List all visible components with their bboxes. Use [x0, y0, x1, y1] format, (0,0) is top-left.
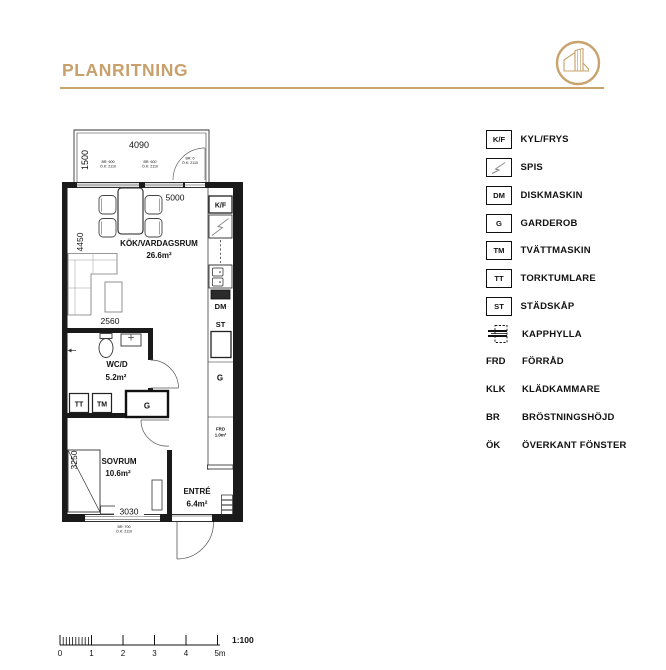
- legend-item-kylfrys: K/F KYL/FRYS: [486, 126, 627, 154]
- room-entry-name: ENTRÉ: [183, 487, 211, 496]
- svg-text:Ö.K: 2110: Ö.K: 2110: [100, 165, 116, 169]
- tt-symbol-box: TT: [486, 269, 512, 288]
- brand-logo-icon: [553, 38, 603, 88]
- legend-item-overkant-fonster: ÖK ÖVERKANT FÖNSTER: [486, 431, 627, 459]
- dim-kitchen-width: 5000: [166, 193, 185, 203]
- dining-set: [99, 188, 162, 237]
- tm-symbol-box: TM: [486, 241, 512, 260]
- room-kitchen-name: KÖK/VARDAGSRUM: [120, 239, 198, 248]
- lightning-icon: [489, 161, 509, 175]
- dim-balcony-depth: 1500: [80, 150, 90, 170]
- sink-icon: [213, 268, 224, 276]
- svg-text:BR: 0: BR: 0: [186, 157, 195, 161]
- bedroom-door: [141, 420, 169, 446]
- dm-symbol-box: DM: [486, 186, 512, 205]
- svg-text:3: 3: [152, 649, 157, 658]
- scale-ratio: 1:100: [232, 635, 254, 645]
- wc-door: [151, 360, 179, 388]
- stove-symbol-box: [486, 158, 512, 177]
- room-bedroom-name: SOVRUM: [101, 457, 136, 466]
- dishwasher-label: DM: [215, 302, 227, 311]
- g-symbol-box: G: [486, 214, 512, 233]
- page-title: PLANRITNING: [62, 60, 188, 81]
- dim-bedroom-width: 3030: [120, 507, 139, 517]
- dim-bedroom-depth: 3250: [69, 450, 79, 469]
- svg-text:Ö.K: 2110: Ö.K: 2110: [182, 161, 198, 165]
- microwave-icon: [211, 290, 230, 299]
- minor-ticks: [63, 637, 88, 645]
- svg-text:4: 4: [184, 649, 189, 658]
- legend: K/F KYL/FRYS SPIS DM DISKMASKIN G GARDER…: [486, 126, 627, 459]
- kf-symbol-box: K/F: [486, 130, 512, 149]
- vent-arrow-icon: [68, 349, 77, 353]
- legend-item-brostningshojd: BR BRÖSTNINGSHÖJD: [486, 404, 627, 432]
- scale-labels: 0 1 2 3 4 5m: [58, 649, 226, 658]
- entrance-door: [177, 522, 214, 559]
- st-symbol-box: ST: [486, 297, 512, 316]
- coffee-table: [105, 282, 122, 312]
- cleaning-cab-label: ST: [216, 320, 226, 329]
- scale-bar: 0 1 2 3 4 5m 1:100: [52, 629, 277, 663]
- legend-item-tvattmaskin: TM TVÄTTMASKIN: [486, 237, 627, 265]
- legend-item-spis: SPIS: [486, 154, 627, 182]
- legend-item-stadskap: ST STÄDSKÅP: [486, 293, 627, 321]
- room-wc-name: WC/D: [106, 360, 128, 369]
- svg-text:BR: 700: BR: 700: [118, 525, 131, 529]
- legend-item-forrad: FRD FÖRRÅD: [486, 348, 627, 376]
- svg-text:BR: 600: BR: 600: [102, 160, 115, 164]
- svg-text:1: 1: [89, 649, 94, 658]
- room-wc-area: 5.2m²: [106, 373, 127, 382]
- svg-text:2: 2: [121, 649, 126, 658]
- legend-item-garderob: G GARDEROB: [486, 209, 627, 237]
- legend-item-kladkammare: KLK KLÄDKAMMARE: [486, 376, 627, 404]
- svg-text:BR: 600: BR: 600: [144, 160, 157, 164]
- storage-area: 1.0m²: [215, 433, 227, 438]
- toilet-icon: [99, 334, 113, 358]
- planritning-page: PLANRITNING 4090 1500 BR: 600Ö.K: 2110 B…: [0, 0, 666, 670]
- fridge-label: K/F: [215, 203, 227, 210]
- hall-wardrobe-label: G: [217, 374, 223, 383]
- storage-label: FRD: [216, 427, 225, 432]
- bedroom-wardrobe-label: G: [144, 402, 150, 411]
- windows: [77, 183, 212, 521]
- coat-rack-icon: [486, 324, 510, 344]
- dryer-label: TT: [75, 402, 84, 409]
- sofa: [68, 254, 117, 316]
- washbasin-icon: [121, 334, 141, 346]
- legend-item-kapphylla: KAPPHYLLA: [486, 320, 627, 348]
- svg-text:Ö.K: 2110: Ö.K: 2110: [142, 165, 158, 169]
- washer-label: TM: [97, 402, 107, 409]
- svg-text:0: 0: [58, 649, 63, 658]
- dim-kitchen-depth: 4450: [75, 232, 85, 251]
- legend-item-torktumlare: TT TORKTUMLARE: [486, 265, 627, 293]
- svg-text:Ö.K: 2110: Ö.K: 2110: [116, 530, 132, 534]
- stove-icon: [212, 219, 229, 236]
- room-kitchen-area: 26.6m²: [146, 251, 172, 260]
- dim-wc-width: 2560: [101, 316, 120, 326]
- header-divider: [60, 87, 604, 89]
- floor-plan: 4090 1500 BR: 600Ö.K: 2110 BR: 600Ö.K: 2…: [55, 122, 255, 584]
- dim-balcony-width: 4090: [129, 140, 149, 150]
- bedroom-wall: [167, 450, 172, 514]
- room-entry-area: 6.4m²: [187, 500, 208, 509]
- legend-item-diskmaskin: DM DISKMASKIN: [486, 182, 627, 210]
- svg-text:5m: 5m: [214, 649, 225, 658]
- room-bedroom-area: 10.6m²: [105, 469, 131, 478]
